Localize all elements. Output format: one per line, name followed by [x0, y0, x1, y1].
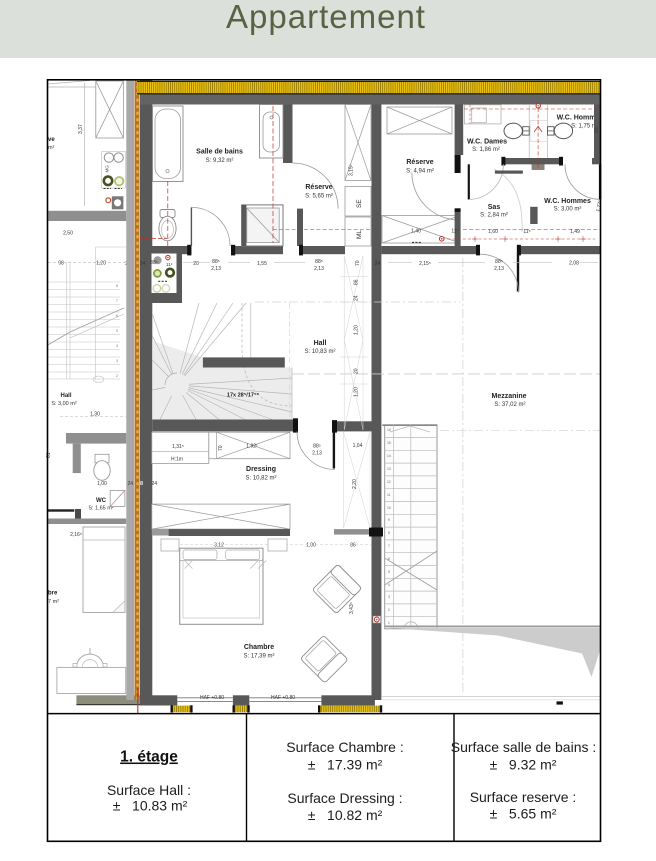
svg-text:Mezzanine: Mezzanine	[491, 393, 526, 400]
svg-text:11⁵: 11⁵	[523, 229, 530, 235]
svg-text:S: 10,83 m²: S: 10,83 m²	[304, 349, 335, 355]
svg-text:Réserve: Réserve	[406, 159, 433, 166]
svg-text:88⁵: 88⁵	[495, 259, 503, 265]
svg-text:HAF +0.80: HAF +0.80	[271, 695, 295, 701]
svg-text:ve: ve	[48, 137, 55, 143]
svg-text:± 10.83 m²: ± 10.83 m²	[113, 798, 188, 814]
svg-text:13: 13	[387, 467, 391, 471]
svg-text:98: 98	[58, 261, 64, 267]
svg-text:2,20: 2,20	[352, 479, 358, 489]
svg-text:Surface Chambre :: Surface Chambre :	[286, 739, 404, 755]
svg-text:1: 1	[388, 621, 390, 625]
svg-text:20: 20	[594, 127, 600, 133]
svg-text:6: 6	[388, 557, 390, 561]
svg-text:2,13: 2,13	[211, 266, 221, 272]
svg-text:86: 86	[350, 543, 356, 549]
svg-text:7: 7	[388, 544, 390, 548]
svg-text:70: 70	[355, 260, 361, 266]
svg-text:8: 8	[140, 481, 143, 487]
svg-text:24: 24	[140, 261, 146, 267]
svg-text:Surface reserve :: Surface reserve :	[470, 789, 577, 805]
svg-text:16: 16	[387, 428, 391, 432]
svg-text:S: 9,32 m²: S: 9,32 m²	[206, 158, 234, 164]
svg-text:24: 24	[128, 481, 134, 487]
svg-text:10: 10	[387, 506, 391, 510]
svg-text:8: 8	[116, 284, 118, 288]
svg-text:4: 4	[116, 344, 118, 348]
svg-text:Appartement: Appartement	[226, 0, 426, 35]
svg-text:7 m²: 7 m²	[48, 599, 59, 605]
svg-text:3,43⁵: 3,43⁵	[349, 602, 355, 614]
svg-text:S: 17,39 m²: S: 17,39 m²	[243, 654, 274, 660]
svg-text:88⁵: 88⁵	[315, 259, 323, 265]
svg-text:Surface Dressing :: Surface Dressing :	[287, 790, 402, 806]
svg-text:4: 4	[388, 583, 390, 587]
svg-text:1,20: 1,20	[354, 325, 360, 335]
svg-text:1,60: 1,60	[488, 229, 498, 235]
svg-text:1,20: 1,20	[354, 387, 360, 397]
svg-text:W.C. Dames: W.C. Dames	[467, 139, 507, 146]
svg-text:2,15⁵: 2,15⁵	[419, 261, 431, 267]
svg-text:2,16⁵: 2,16⁵	[70, 532, 82, 538]
svg-text:S: 10,82 m²: S: 10,82 m²	[245, 476, 276, 482]
svg-text:12: 12	[387, 480, 391, 484]
svg-text:7: 7	[116, 299, 118, 303]
svg-text:1,40: 1,40	[411, 229, 421, 235]
svg-text:Dressing: Dressing	[246, 466, 276, 473]
svg-text:11⁴: 11⁴	[166, 262, 173, 267]
svg-text:5: 5	[116, 329, 118, 333]
svg-text:S: 1,86 m²: S: 1,86 m²	[472, 147, 500, 153]
svg-text:88⁵: 88⁵	[313, 444, 321, 450]
svg-text:14: 14	[387, 454, 391, 458]
svg-text:88⁵: 88⁵	[212, 259, 220, 265]
svg-text:2,13: 2,13	[314, 266, 324, 272]
svg-text:1,49: 1,49	[570, 229, 580, 235]
svg-text:SE: SE	[356, 199, 363, 208]
svg-text:Hall: Hall	[60, 393, 71, 399]
svg-text:H:1m: H:1m	[171, 457, 183, 463]
svg-text:9: 9	[388, 518, 390, 522]
svg-text:Salle de bains: Salle de bains	[196, 149, 243, 156]
svg-text:± 9.32 m²: ± 9.32 m²	[490, 757, 557, 773]
svg-text:3,15⁵: 3,15⁵	[349, 164, 355, 176]
svg-text:W.C. Homme: W.C. Homme	[557, 115, 600, 122]
svg-text:S: 5,65 m²: S: 5,65 m²	[305, 194, 333, 200]
svg-text:8: 8	[388, 531, 390, 535]
svg-text:W.C. Hommes: W.C. Hommes	[544, 198, 591, 205]
svg-text:MG: MG	[105, 165, 110, 173]
svg-text:15: 15	[387, 441, 391, 445]
svg-text:2,08: 2,08	[569, 261, 579, 267]
svg-text:1. étage: 1. étage	[120, 749, 178, 766]
svg-text:24: 24	[354, 295, 360, 301]
svg-text:S: 37,02 m²: S: 37,02 m²	[494, 402, 525, 408]
svg-text:5: 5	[388, 570, 390, 574]
svg-text:Sas: Sas	[488, 204, 501, 211]
svg-text:Surface Hall :: Surface Hall :	[107, 782, 191, 798]
svg-text:bre: bre	[48, 591, 58, 597]
svg-text:2,50: 2,50	[63, 231, 73, 237]
svg-text:WC: WC	[96, 498, 107, 504]
svg-text:± 10.82 m²: ± 10.82 m²	[308, 807, 383, 823]
svg-text:Hall: Hall	[314, 340, 327, 347]
svg-text:2,13: 2,13	[312, 451, 322, 457]
svg-text:± 17.39 m²: ± 17.39 m²	[308, 757, 383, 773]
svg-text:20: 20	[354, 368, 360, 374]
svg-text:86: 86	[354, 279, 360, 285]
svg-text:1,04: 1,04	[353, 443, 363, 449]
svg-text:S: 2,84 m²: S: 2,84 m²	[480, 213, 508, 219]
svg-text:3,12: 3,12	[214, 543, 224, 549]
svg-text:11: 11	[387, 493, 391, 497]
svg-text:1,00: 1,00	[306, 543, 316, 549]
svg-text:1,92¹: 1,92¹	[246, 444, 258, 450]
svg-text:HAF +0.80: HAF +0.80	[200, 695, 224, 701]
svg-text:6: 6	[116, 314, 118, 318]
svg-text:88⁵: 88⁵	[150, 260, 158, 266]
svg-text:2,13: 2,13	[494, 266, 504, 272]
svg-text:17x 28⁵/17⁵⁶: 17x 28⁵/17⁵⁶	[227, 393, 260, 399]
svg-text:70: 70	[218, 445, 224, 451]
svg-text:m²: m²	[48, 145, 55, 151]
svg-text:2: 2	[116, 374, 118, 378]
svg-text:ML: ML	[356, 230, 363, 239]
svg-text:3: 3	[116, 359, 118, 363]
svg-text:24: 24	[152, 481, 158, 487]
svg-text:Chambre: Chambre	[244, 644, 274, 651]
svg-text:1,20: 1,20	[96, 261, 106, 267]
svg-text:Surface salle de bains :: Surface salle de bains :	[451, 739, 597, 755]
svg-text:3: 3	[388, 595, 390, 599]
svg-text:S: 3,00 m²: S: 3,00 m²	[554, 207, 582, 213]
svg-text:Réserve: Réserve	[305, 184, 332, 191]
svg-text:S: 4,94 m²: S: 4,94 m²	[406, 169, 434, 175]
svg-text:1,31⁵: 1,31⁵	[172, 444, 184, 450]
svg-text:± 5.65 m²: ± 5.65 m²	[490, 806, 557, 822]
svg-text:1,00: 1,00	[97, 481, 107, 487]
svg-text:3,37: 3,37	[78, 124, 84, 134]
svg-text:1,55: 1,55	[257, 261, 267, 267]
svg-text:11⁵: 11⁵	[451, 229, 458, 235]
svg-text:2: 2	[388, 608, 390, 612]
svg-text:S: 3,00 m²: S: 3,00 m²	[51, 401, 77, 407]
svg-text:1,77⁵: 1,77⁵	[595, 200, 604, 213]
svg-text:20: 20	[193, 261, 199, 267]
svg-text:24: 24	[375, 261, 381, 267]
